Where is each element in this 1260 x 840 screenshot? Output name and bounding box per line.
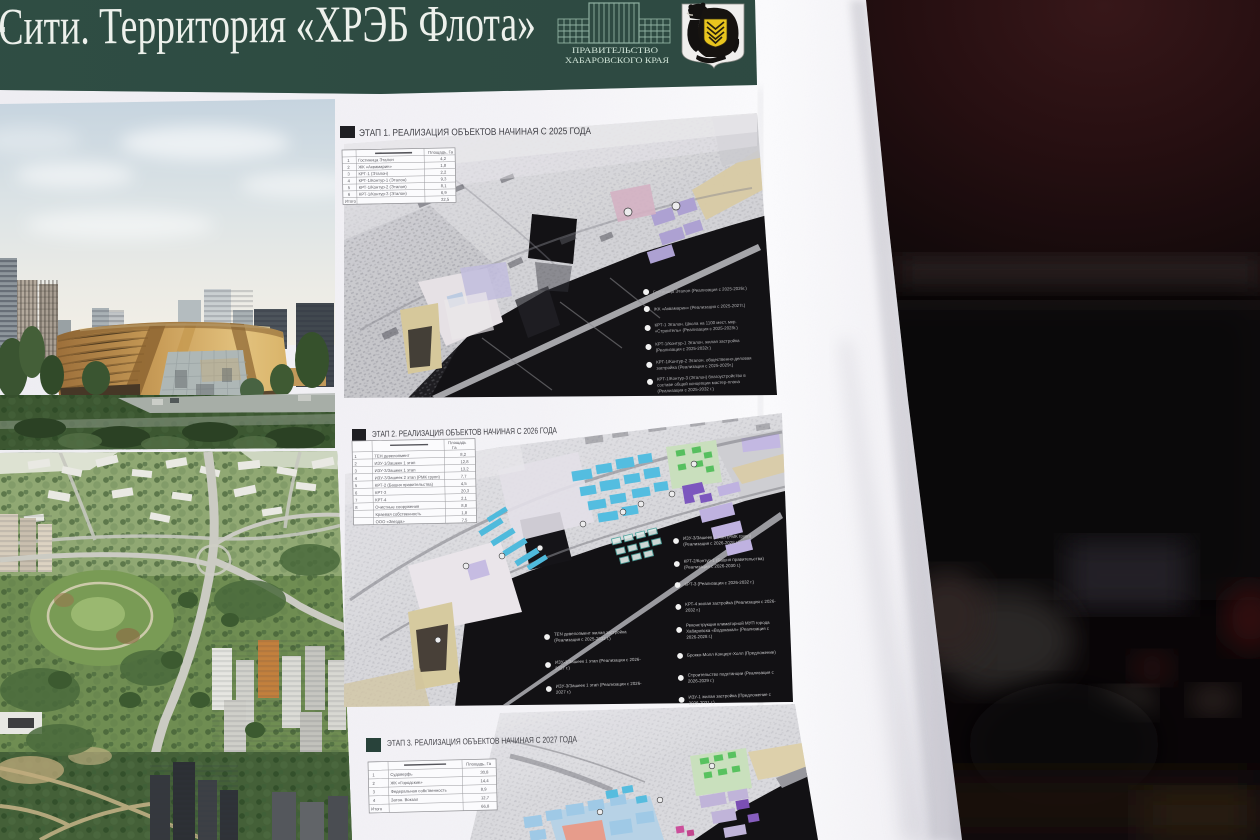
svg-text:8,2: 8,2 [460,452,467,457]
svg-text:2,1: 2,1 [461,496,468,501]
svg-text:13,2: 13,2 [461,466,470,471]
svg-text:ПРАВИТЕЛЬСТВО: ПРАВИТЕЛЬСТВО [572,45,658,55]
svg-text:ЖК «Аквамарин»: ЖК «Аквамарин» [358,164,392,170]
svg-text:ИЗУ-1/Зашеек 1 этап: ИЗУ-1/Зашеек 1 этап [374,460,415,466]
svg-text:2027 г.): 2027 г.) [555,665,570,671]
svg-text:2026-2028 г.): 2026-2028 г.) [686,634,713,640]
svg-text:КРТ-3: КРТ-3 [375,490,387,495]
svg-text:1,8: 1,8 [440,163,447,168]
svg-text:ХАБАРОВСКОГО КРАЯ: ХАБАРОВСКОГО КРАЯ [565,55,669,65]
svg-text:КРТ-1/Контур-2 (Эталон): КРТ-1/Контур-2 (Эталон) [359,184,408,190]
svg-text:66,8: 66,8 [481,804,490,809]
svg-text:30,8: 30,8 [480,770,489,775]
svg-text:7,5: 7,5 [461,517,468,522]
svg-text:Итого: Итого [345,199,357,204]
svg-text:32,5: 32,5 [441,197,450,202]
svg-text:8,1: 8,1 [441,183,448,188]
svg-text:ТЕН девелопмент: ТЕН девелопмент [374,453,409,459]
svg-text:Очистные сооружения: Очистные сооружения [375,504,419,510]
svg-text:Затон. Вокзал: Затон. Вокзал [391,797,419,803]
svg-text:12,8: 12,8 [460,459,469,464]
svg-text:КРТ-1 (Эталон): КРТ-1 (Эталон) [358,171,388,177]
svg-text:ЖК «Городские»: ЖК «Городские» [390,780,423,786]
svg-text:Площадь: Площадь [448,440,467,445]
svg-text:7,7: 7,7 [461,474,468,479]
svg-text:20,3: 20,3 [461,488,470,493]
svg-text:КРТ-1/Контур-1 (Эталон): КРТ-1/Контур-1 (Эталон) [359,177,408,183]
svg-text:2032 г.): 2032 г.) [685,607,700,613]
svg-text:Площадь, Га: Площадь, Га [428,149,454,154]
svg-text:Га: Га [452,445,457,450]
svg-text:4,2: 4,2 [440,156,447,161]
svg-text:1,8: 1,8 [461,510,468,515]
svg-text:4,5: 4,5 [461,481,468,486]
svg-text:Краевая собственность: Краевая собственность [375,511,422,517]
svg-text:Площадь, Га: Площадь, Га [466,761,492,767]
svg-text:2,2: 2,2 [440,170,447,175]
svg-text:КРТ-4: КРТ-4 [375,497,387,502]
svg-text:2026-2031 г.): 2026-2031 г.) [689,700,716,706]
svg-text:2026-2029 г.): 2026-2029 г.) [688,678,715,684]
svg-text:2027 г.): 2027 г.) [556,689,571,695]
svg-text:14,4: 14,4 [480,778,489,783]
svg-text:9,3: 9,3 [441,176,448,181]
svg-text:ООО «Звезда»: ООО «Звезда» [376,519,406,525]
svg-text:КРТ-1/Контур-3 (Эталон): КРТ-1/Контур-3 (Эталон) [359,191,408,197]
svg-text:6,9: 6,9 [441,190,448,195]
svg-text:8,8: 8,8 [461,503,468,508]
svg-text:Гостиница Эталон: Гостиница Эталон [358,157,394,163]
svg-text:Итого: Итого [371,806,383,811]
svg-text:ИЗУ-3/Зашеек 1 этап: ИЗУ-3/Зашеек 1 этап [375,467,416,473]
svg-text:8,9: 8,9 [481,787,488,792]
svg-text:ЭТАП 1. РЕАЛИЗАЦИЯ ОБЪЕКТОВ НА: ЭТАП 1. РЕАЛИЗАЦИЯ ОБЪЕКТОВ НАЧИНАЯ С 20… [359,126,592,139]
svg-text:12,7: 12,7 [481,795,490,800]
svg-text:-Сити. Территория «ХРЭБ Флота»: -Сити. Территория «ХРЭБ Флота» [0,0,536,56]
svg-text:Судоверфь: Судоверфь [390,771,413,777]
